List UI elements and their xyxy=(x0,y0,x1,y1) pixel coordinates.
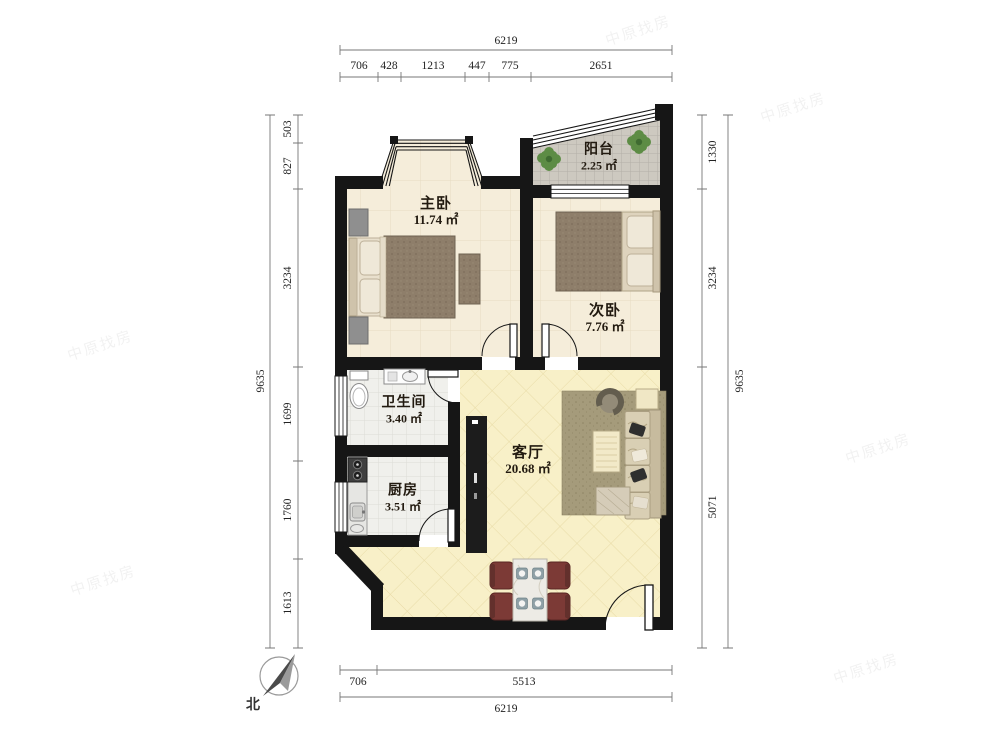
kitchen-window xyxy=(335,482,347,532)
room-area: 7.76 ㎡ xyxy=(585,319,624,335)
compass-icon xyxy=(260,654,298,696)
coffee-table xyxy=(593,431,620,472)
ottoman xyxy=(596,487,630,515)
kitchen-counter xyxy=(348,457,367,535)
dim-top-seg: 447 xyxy=(468,60,485,72)
dim-left-seg: 1699 xyxy=(282,403,294,426)
room-name: 卫生间 xyxy=(382,394,427,411)
dim-right-seg: 1330 xyxy=(707,141,719,164)
nightstand xyxy=(349,209,368,236)
dim-bottom-total: 6219 xyxy=(495,703,518,715)
dim-left-total: 9635 xyxy=(255,370,267,393)
room-label-master: 主卧 11.74 ㎡ xyxy=(414,194,459,228)
dim-right-total: 9635 xyxy=(734,370,746,393)
balcony-room-window xyxy=(551,185,629,198)
dim-right-seg: 5071 xyxy=(707,496,719,519)
room-name: 客厅 xyxy=(505,443,551,461)
floorplan-canvas: 主卧 11.74 ㎡ 次卧 7.76 ㎡ 阳台 2.25 ㎡ 卫生间 3.40 … xyxy=(0,0,1000,750)
side-table xyxy=(636,389,658,409)
room-label-living: 客厅 20.68 ㎡ xyxy=(505,443,551,477)
stove-icon xyxy=(348,458,367,482)
dish-icon xyxy=(351,525,364,533)
dim-left-seg: 1760 xyxy=(282,499,294,522)
room-area: 3.51 ㎡ xyxy=(385,499,421,513)
dim-left-seg: 827 xyxy=(282,157,294,174)
dim-top-seg: 775 xyxy=(501,60,518,72)
dim-left-seg: 503 xyxy=(282,120,294,137)
dim-left-seg: 3234 xyxy=(282,267,294,290)
second-bed xyxy=(556,211,660,292)
dim-top-seg: 1213 xyxy=(422,60,445,72)
compass-north-label: 北 xyxy=(246,694,260,714)
tv-cabinet xyxy=(466,416,487,553)
dim-right-seg: 3234 xyxy=(707,267,719,290)
room-name: 主卧 xyxy=(414,194,459,212)
room-label-bathroom: 卫生间 3.40 ㎡ xyxy=(382,394,427,425)
room-area: 20.68 ㎡ xyxy=(505,461,551,477)
room-area: 11.74 ㎡ xyxy=(414,212,459,228)
dim-top-seg: 706 xyxy=(350,60,367,72)
dim-top-seg: 428 xyxy=(380,60,397,72)
dim-top-total: 6219 xyxy=(495,35,518,47)
room-area: 2.25 ㎡ xyxy=(581,158,617,172)
room-name: 厨房 xyxy=(385,482,421,499)
dim-left-seg: 1613 xyxy=(282,592,294,615)
floorplan-drawing xyxy=(0,0,1000,750)
sink-vanity-icon xyxy=(384,369,425,384)
room-label-balcony: 阳台 2.25 ㎡ xyxy=(581,141,617,172)
dim-bottom-seg: 706 xyxy=(349,676,366,688)
nightstand xyxy=(349,317,368,344)
bedroom-bench xyxy=(459,254,480,304)
room-name: 次卧 xyxy=(585,301,624,319)
room-area: 3.40 ㎡ xyxy=(382,411,427,425)
kitchen-sink-icon xyxy=(350,503,365,521)
dim-top-seg: 2651 xyxy=(590,60,613,72)
room-name: 阳台 xyxy=(581,141,617,158)
room-label-second: 次卧 7.76 ㎡ xyxy=(585,301,624,335)
room-label-kitchen: 厨房 3.51 ㎡ xyxy=(385,482,421,513)
dim-bottom-seg: 5513 xyxy=(513,676,536,688)
bathroom-window xyxy=(335,376,347,436)
toilet-icon xyxy=(350,371,368,409)
